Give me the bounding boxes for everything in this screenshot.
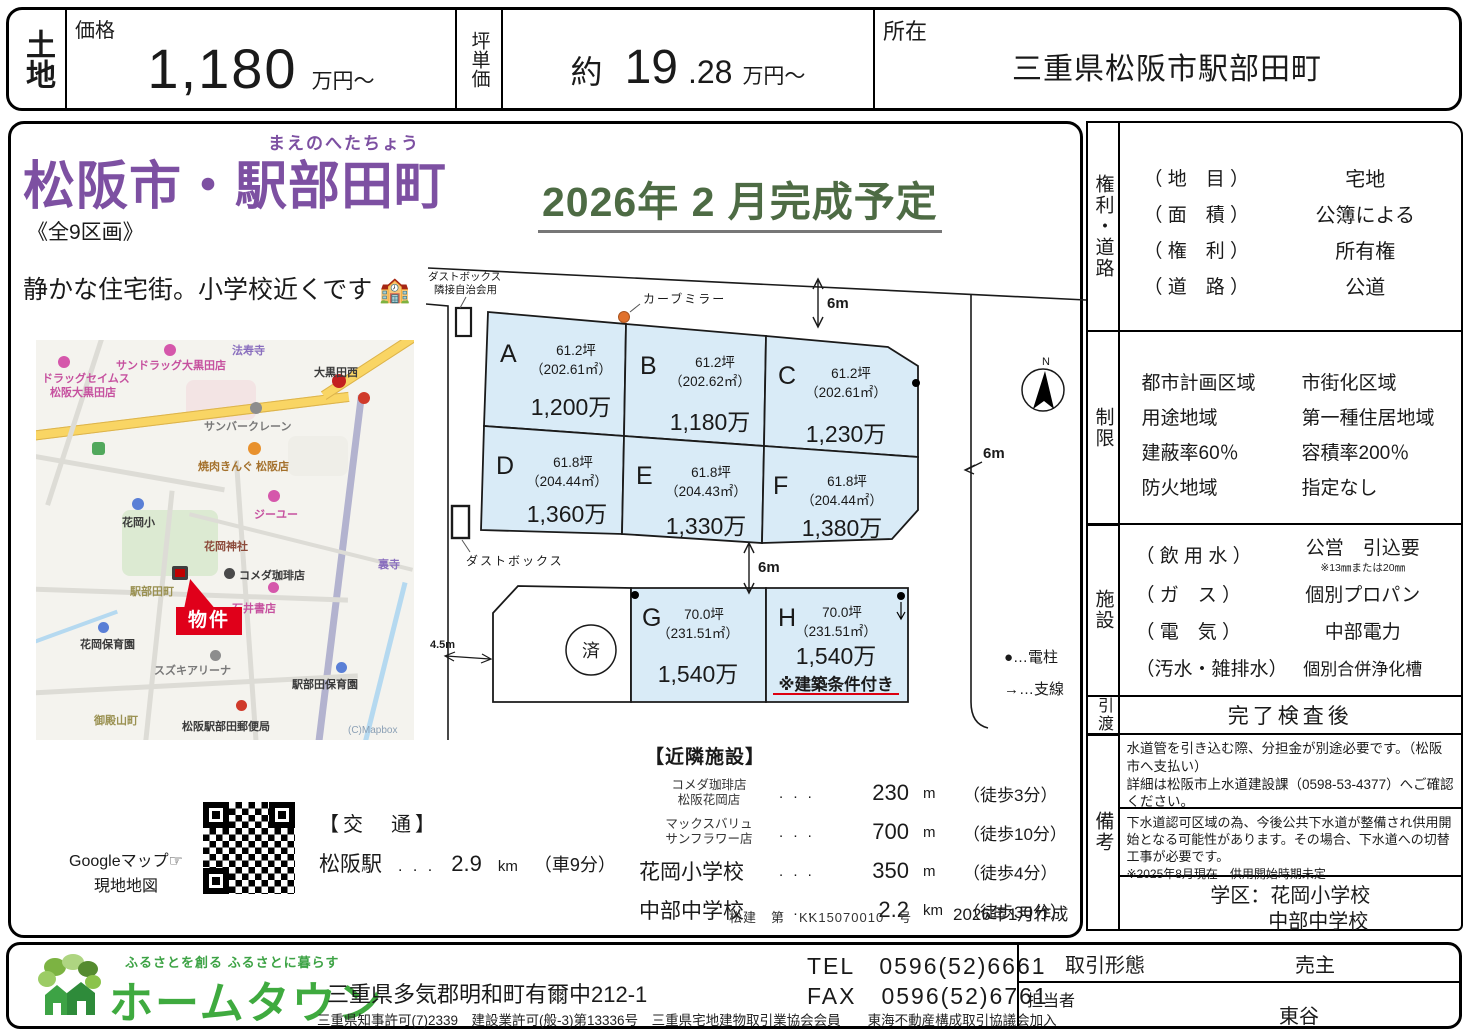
nearby-unit: km (909, 902, 957, 919)
map-label: ジーユー (254, 506, 298, 522)
nearby-facilities: 【近隣施設】 コメダ珈琲店松阪花岡店 . . . 230 m （徒歩3分） マッ… (639, 742, 1091, 925)
school-district-line1: 学区：花岡小学校 (1127, 883, 1455, 909)
plot-tsubo: 61.2坪 (556, 343, 596, 358)
map-block-area (288, 436, 348, 476)
tsubo-price-int: 19 (625, 40, 678, 95)
map-pin (224, 568, 235, 579)
spec-key: （汚水・雑排水） (1120, 654, 1265, 681)
spec-value: 個別合併浄化槽 (1265, 655, 1462, 680)
road-edge-top (428, 268, 1086, 300)
remarks-content: 水道管を引き込む際、分担金が別途必要です。（松阪市へ支払い） 詳細は松阪市上水道… (1118, 733, 1464, 931)
map-label: 松阪大黒田店 (50, 384, 116, 400)
nearby-unit: m (909, 863, 957, 880)
access-row: 松阪駅 . . . 2.9 km （車9分） (319, 848, 616, 878)
remark-text: 下水道認可区域の為、今後公共下水道が整備され供用開始となる可能性があります。その… (1127, 814, 1455, 865)
nearby-unit: m (909, 785, 957, 802)
nearby-name: コメダ珈琲店 (639, 778, 779, 793)
approx-label: 約 (571, 47, 603, 93)
spec-value: 公道 (1270, 271, 1462, 300)
fax-number: FAX 0596(52)6761 (807, 982, 1049, 1012)
spec-value: 中部電力 (1265, 617, 1462, 644)
plot-price: 1,230万 (806, 421, 887, 447)
location-value: 三重県松阪市駅部田町 (875, 44, 1459, 88)
leader-line (460, 297, 466, 308)
price-unit: 万円～ (312, 65, 375, 95)
agent-value: 東谷 (1279, 1000, 1319, 1029)
legend-wire: →…支線 (1004, 681, 1064, 698)
dustbox-label2: 隣接自治会用 (434, 283, 497, 296)
rights-content: （ 地 目 ）宅地 （ 面 積 ）公簿による （ 権 利 ）所有権 （ 道 路 … (1118, 121, 1464, 332)
restrictions-content: 都市計画区域市街化区域 用途地域第一種住居地域 建蔽率60％容積率200％ 防火… (1118, 330, 1464, 526)
nearby-unit: m (909, 824, 957, 841)
map-pin (250, 402, 262, 414)
remark-text: 水道管を引き込む際、分担金が別途必要です。（松阪市へ支払い） (1127, 740, 1455, 776)
completion-date: 2026年 2 月完成予定 (538, 168, 942, 233)
spec-key: （ 道 路 ） (1120, 272, 1270, 299)
utility-pole-dot (631, 591, 639, 599)
qr-code (203, 802, 295, 894)
section-remarks: 備考 水道管を引き込む際、分担金が別途必要です。（松阪市へ支払い） 詳細は松阪市… (1086, 733, 1463, 931)
map-label: スズキアリーナ (154, 662, 231, 678)
plot-sqm: （204.44㎡） (801, 493, 883, 508)
map-stream (362, 582, 408, 740)
map-label: 松阪駅部田郵便局 (182, 718, 270, 734)
plot-sqm: （231.51㎡） (657, 626, 739, 641)
deal-type-label: 取引形態 (1065, 949, 1145, 978)
location-label: 所在 (883, 14, 927, 46)
map-label: 駅部田町 (130, 583, 174, 599)
lot-count: 《全9区画》 (27, 216, 144, 246)
legend-pole: ●…電柱 (1004, 649, 1058, 666)
plot-price: 1,180万 (670, 409, 751, 435)
section-rights: 権利・道路 （ 地 目 ）宅地 （ 面 積 ）公簿による （ 権 利 ）所有権 … (1086, 121, 1463, 332)
company-logo-icon (33, 953, 105, 1017)
spec-key: 防火地域 (1142, 473, 1302, 500)
location-cell: 所在 三重県松阪市駅部田町 (875, 10, 1459, 108)
land-flyer: 土地 価格 1,180 万円～ 坪単価 約 19 .28 万円～ 所在 三重県松… (0, 0, 1469, 1035)
nearby-name: マックスバリュ (639, 817, 779, 832)
map-pin (58, 356, 70, 368)
map-label: 花岡保育園 (80, 636, 135, 652)
spec-key: （ 面 積 ） (1120, 200, 1270, 227)
qr-caption2: 現地地図 (51, 872, 201, 896)
spec-value: 公簿による (1270, 199, 1462, 228)
utility-pole-dot (897, 592, 905, 600)
plot-price: 1,200万 (531, 394, 612, 420)
remarks-label: 備考 (1086, 733, 1120, 931)
nearby-time: （徒歩3分） (957, 781, 1097, 806)
rights-label: 権利・道路 (1086, 121, 1120, 332)
nearby-name: 花岡小学校 (639, 856, 779, 886)
section-handover: 引渡 完了検査後 (1086, 695, 1463, 736)
license-number: 松建 第 KK15070010 号 (729, 907, 912, 926)
plot-tsubo: 70.0坪 (822, 605, 862, 620)
map-pin (268, 490, 280, 502)
land-type-label: 土地 (9, 10, 67, 108)
tsubo-price-cell: 約 19 .28 万円～ (503, 10, 875, 108)
area-map: ドラッグセイムス 松阪大黒田店 サンドラッグ大黒田店 法寿寺 大黒田西 サンバー… (36, 340, 414, 740)
map-label: 法寿寺 (232, 342, 265, 358)
spec-key: 建蔽率60％ (1142, 438, 1302, 465)
utility-pole-dot (912, 379, 920, 387)
leader-line (462, 540, 470, 552)
spec-value: 容積率200％ (1302, 438, 1462, 465)
access-heading: 【交 通】 (319, 808, 439, 837)
map-label: 駅部田保育園 (292, 676, 358, 692)
plot-tsubo: 61.8坪 (827, 474, 867, 489)
company-address: 三重県多気郡明和町有爾中212-1 (327, 977, 647, 1009)
school-district-line2: 中部中学校 (1127, 909, 1455, 935)
plot-sqm: （204.44㎡） (526, 474, 608, 489)
nearby-heading: 【近隣施設】 (645, 742, 1091, 769)
plot-price: 1,540万 (658, 661, 739, 687)
restrictions-label: 制限 (1086, 330, 1120, 526)
nearby-dots: . . . (779, 824, 837, 841)
plot-letter: B (640, 352, 657, 380)
map-pin (132, 498, 144, 510)
dim-arrow (446, 656, 490, 659)
road-width-label: 6m (758, 559, 780, 576)
handover-value: 完了検査後 (1228, 700, 1353, 730)
plot-letter: F (773, 472, 788, 500)
map-label: 裏寺 (378, 556, 400, 572)
property-marker (172, 566, 188, 580)
spec-key: 都市計画区域 (1142, 368, 1302, 395)
qr-finder-icon (203, 868, 229, 894)
created-date: 2026年1月作成 (953, 900, 1068, 925)
plot-letter: C (778, 362, 796, 390)
map-pin (164, 344, 176, 356)
tsubo-unit-label: 坪単価 (457, 10, 503, 108)
spec-key: （ 電 気 ） (1120, 617, 1265, 644)
map-pin (210, 650, 221, 661)
plot-condition-note: ※建築条件付き (778, 674, 893, 694)
spec-value: 宅地 (1270, 163, 1462, 192)
map-label: 御殿山町 (94, 712, 138, 728)
map-pin (98, 622, 109, 633)
school-emoji-icon: 🏫 (379, 276, 410, 304)
nearby-distance: 230 (837, 780, 909, 806)
section-facilities: 施設 （ 飲 用 水 ） 公営 引込要※13㎜または20㎜ （ ガ ス ）個別プ… (1086, 523, 1463, 697)
map-label: 大黒田西 (314, 364, 358, 380)
spec-value: 個別プロパン (1265, 580, 1462, 607)
map-label: コメダ珈琲店 (239, 567, 305, 583)
qr-finder-icon (203, 802, 229, 828)
map-credit: (C)Mapbox (348, 725, 397, 736)
plot-sqm: （204.43㎡） (665, 484, 747, 499)
remark-text: 詳細は松阪市上水道建設課（0598-53-4377）へご確認ください。 (1127, 776, 1455, 812)
nearby-name2: 松阪花岡店 (639, 793, 779, 808)
nearby-name2: サンフラワー店 (639, 832, 779, 847)
section-restrictions: 制限 都市計画区域市街化区域 用途地域第一種住居地域 建蔽率60％容積率200％… (1086, 330, 1463, 526)
sold-label: 済 (582, 641, 600, 661)
access-dots: . . . (398, 858, 435, 876)
access-station: 松阪駅 (319, 848, 382, 878)
leader-line (630, 304, 640, 312)
spec-value: 第一種住居地域 (1302, 403, 1462, 430)
map-pin (336, 662, 347, 673)
spec-value: 市街化区域 (1302, 368, 1462, 395)
spec-value: 公営 引込要 (1265, 533, 1462, 560)
spec-key: 用途地域 (1142, 403, 1302, 430)
remark-note-2: 下水道認可区域の為、今後公共下水道が整備され供用開始となる可能性があります。その… (1120, 809, 1462, 877)
road-width-label: 6m (983, 445, 1005, 462)
plot-letter: E (636, 462, 653, 490)
footer-bar: ふるさとを創る ふるさとに暮らす ホームタウン 三重県多気郡明和町有爾中212-… (6, 942, 1462, 1029)
handover-content: 完了検査後 (1118, 695, 1464, 736)
plot-diagram: A 61.2坪 （202.61㎡） 1,200万 B 61.2坪 （202.62… (426, 262, 1088, 744)
deal-type-row: 取引形態 売主 (1017, 945, 1459, 983)
map-pin (268, 582, 279, 593)
nearby-row: コメダ珈琲店松阪花岡店 . . . 230 m （徒歩3分） (639, 778, 1091, 808)
plot-tsubo: 61.2坪 (831, 366, 871, 381)
page-title: 松阪市・駅部田町 (23, 144, 447, 219)
facilities-label: 施設 (1086, 523, 1120, 697)
map-label: 花岡小 (122, 514, 155, 530)
dustbox-icon (452, 506, 469, 538)
dustbox-label: ダストボックス (466, 553, 564, 568)
property-callout: 物件 (176, 607, 242, 635)
nearby-distance: 700 (837, 819, 909, 845)
nearby-distance: 350 (837, 858, 909, 884)
spec-key: （ ガ ス ） (1120, 580, 1265, 607)
spec-key: （ 権 利 ） (1120, 236, 1270, 263)
road-width-label: 6m (827, 295, 849, 312)
remark-note-1: 水道管を引き込む際、分担金が別途必要です。（松阪市へ支払い） 詳細は松阪市上水道… (1120, 735, 1462, 809)
plot-tsubo: 61.8坪 (553, 455, 593, 470)
map-label: サンドラッグ大黒田店 (116, 357, 226, 373)
spec-key: （ 飲 用 水 ） (1120, 541, 1265, 568)
road-edge-left (426, 304, 448, 740)
curve-mirror-icon (619, 312, 630, 323)
company-licenses: 三重県知事許可(7)2339 建設業許可(般-3)第13336号 三重県宅地建物… (317, 1009, 1057, 1029)
price-cell: 価格 1,180 万円～ (67, 10, 457, 108)
plot-sqm: （231.51㎡） (795, 624, 877, 639)
dustbox-icon (456, 308, 471, 336)
access-time: （車9分） (534, 851, 616, 877)
map-pin (236, 700, 247, 711)
plot-price: 1,540万 (796, 643, 877, 669)
curve-mirror-label: カーブミラー (643, 291, 726, 306)
plot-letter: A (500, 340, 517, 368)
contact-block: TEL 0596(52)6661 FAX 0596(52)6761 (807, 952, 1049, 1012)
plot-sqm: （202.61㎡） (530, 362, 612, 377)
agent-label: 担当者 (1027, 987, 1075, 1011)
plot-letter: D (496, 452, 514, 480)
compass-north-label: N (1042, 356, 1050, 368)
tel-number: TEL 0596(52)6661 (807, 952, 1049, 982)
spec-note: ※13㎜または20㎜ (1265, 560, 1462, 575)
nearby-time: （徒歩4分） (957, 859, 1097, 884)
spec-value: 所有権 (1270, 235, 1462, 264)
road-width-label: 4.5m (430, 639, 455, 651)
catch-copy: 静かな住宅街。小学校近くです 🏫 (23, 270, 410, 306)
spec-key: （ 地 目 ） (1120, 164, 1270, 191)
plot-price: 1,360万 (527, 501, 608, 527)
header-bar: 土地 価格 1,180 万円～ 坪単価 約 19 .28 万円～ 所在 三重県松… (6, 7, 1462, 111)
qr-finder-icon (269, 802, 295, 828)
map-pin (248, 442, 261, 455)
nearby-row: マックスバリュサンフラワー店 . . . 700 m （徒歩10分） (639, 817, 1091, 847)
tsubo-price-unit: 万円～ (742, 60, 805, 90)
plot-price: 1,330万 (666, 513, 747, 539)
school-district: 学区：花岡小学校 中部中学校 (1120, 877, 1462, 940)
arrowhead (965, 465, 975, 474)
facilities-content: （ 飲 用 水 ） 公営 引込要※13㎜または20㎜ （ ガ ス ）個別プロパン… (1118, 523, 1464, 697)
handover-label: 引渡 (1086, 695, 1120, 736)
map-pin (358, 392, 370, 404)
road-edge-right (971, 295, 988, 728)
nearby-dots: . . . (779, 863, 837, 880)
qr-caption: Googleマップ☞ (51, 847, 201, 871)
plot-tsubo: 70.0坪 (684, 607, 724, 622)
map-label: 焼肉きんぐ 松阪店 (198, 458, 289, 474)
plot-tsubo: 61.2坪 (695, 355, 735, 370)
nearby-dots: . . . (779, 785, 837, 802)
nearby-row: 花岡小学校 . . . 350 m （徒歩4分） (639, 856, 1091, 886)
access-distance: 2.9 (451, 851, 482, 877)
plot-sqm: （202.61㎡） (805, 385, 887, 400)
plot-sqm: （202.62㎡） (669, 374, 751, 389)
map-bus-icon (92, 442, 105, 455)
nearby-time: （徒歩10分） (957, 820, 1097, 845)
plot-tsubo: 61.8坪 (691, 465, 731, 480)
spec-sidebar: 権利・道路 （ 地 目 ）宅地 （ 面 積 ）公簿による （ 権 利 ）所有権 … (1086, 121, 1463, 931)
price-value: 1,180 (147, 36, 297, 101)
access-unit: km (498, 858, 518, 875)
deal-type-value: 売主 (1295, 949, 1335, 978)
tsubo-price-dec: .28 (688, 54, 732, 91)
map-label: サンバークレーン (204, 418, 291, 434)
plot-price: 1,380万 (802, 515, 883, 541)
map-label: 花岡神社 (204, 538, 248, 554)
dustbox-label: ダストボックス (428, 270, 501, 283)
spec-value: 指定なし (1302, 473, 1462, 500)
main-panel: まえのへたちょう 松阪市・駅部田町 《全9区画》 静かな住宅街。小学校近くです … (8, 121, 1083, 938)
plot-letter: H (778, 604, 796, 632)
